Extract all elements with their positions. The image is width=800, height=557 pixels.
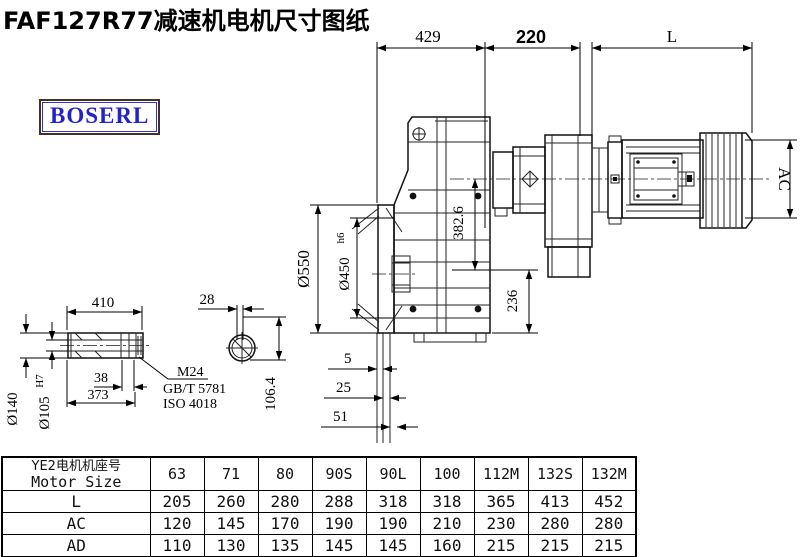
col-header: 63 — [150, 457, 204, 491]
dim-label-AC: AC — [775, 167, 794, 191]
row-label: L — [2, 491, 150, 513]
dim-label-429: 429 — [415, 27, 441, 46]
col-header: 132S — [528, 457, 582, 491]
row-label: AD — [2, 535, 150, 557]
dim-label-5: 5 — [344, 351, 352, 367]
cell: 215 — [582, 535, 636, 557]
cell: 120 — [150, 513, 204, 535]
motor-size-table: YE2电机机座号 Motor Size 63 71 80 90S 90L 100… — [1, 456, 637, 557]
cell: 215 — [474, 535, 528, 557]
motor-view — [608, 133, 752, 228]
cell: 413 — [528, 491, 582, 513]
dim-label-51: 51 — [333, 409, 348, 425]
table-header-en: Motor Size — [3, 474, 150, 490]
dim-label-dia105-tol: H7 — [34, 374, 46, 388]
cell: 205 — [150, 491, 204, 513]
gearbox-view — [352, 117, 490, 443]
table-header-row: YE2电机机座号 Motor Size 63 71 80 90S 90L 100… — [2, 457, 636, 491]
dim-label-106-4: 106.4 — [263, 377, 279, 411]
technical-drawing: 429 220 L AC 382.6 236 Ø550 Ø450 h6 5 25… — [0, 0, 800, 456]
cell: 190 — [366, 513, 420, 535]
dim-label-220: 220 — [516, 27, 546, 47]
cell: 365 — [474, 491, 528, 513]
cell: 110 — [150, 535, 204, 557]
dim-label-dia450-tol: h6 — [335, 232, 347, 244]
cell: 260 — [204, 491, 258, 513]
col-header: 132M — [582, 457, 636, 491]
table-row-AC: AC 120 145 170 190 190 210 230 280 280 — [2, 513, 636, 535]
dim-label-410: 410 — [92, 295, 115, 311]
col-header: 112M — [474, 457, 528, 491]
cell: 145 — [312, 535, 366, 557]
col-header: 90L — [366, 457, 420, 491]
cell: 210 — [420, 513, 474, 535]
cell: 288 — [312, 491, 366, 513]
dim-label-236: 236 — [505, 289, 521, 312]
dim-label-dia105: Ø105 — [37, 396, 53, 429]
dim-label-28: 28 — [200, 292, 215, 308]
cell: 135 — [258, 535, 312, 557]
cell: 318 — [420, 491, 474, 513]
cell: 280 — [582, 513, 636, 535]
dim-label-38: 38 — [94, 371, 108, 386]
cell: 280 — [258, 491, 312, 513]
cell: 215 — [528, 535, 582, 557]
col-header: 100 — [420, 457, 474, 491]
dim-label-GB-T-5781: GB/T 5781 — [163, 382, 226, 397]
table-row-AD: AD 110 130 135 145 145 160 215 215 215 — [2, 535, 636, 557]
drawing-page: FAF127R77减速机电机尺寸图纸 BOSERL — [0, 0, 800, 557]
bore-circle-detail — [226, 332, 258, 364]
cell: 280 — [528, 513, 582, 535]
dim-label-dia550: Ø550 — [294, 250, 313, 288]
dim-label-M24: M24 — [177, 365, 203, 380]
dim-label-dia450: Ø450 — [337, 257, 353, 290]
cell: 160 — [420, 535, 474, 557]
col-header: 80 — [258, 457, 312, 491]
table-header-cell: YE2电机机座号 Motor Size — [2, 457, 150, 491]
table-header-cn: YE2电机机座号 — [3, 459, 150, 474]
col-header: 71 — [204, 457, 258, 491]
dim-label-dia140: Ø140 — [5, 392, 21, 425]
dim-label-L: L — [667, 27, 677, 46]
cell: 230 — [474, 513, 528, 535]
cell: 145 — [366, 535, 420, 557]
cell: 145 — [204, 513, 258, 535]
cell: 130 — [204, 535, 258, 557]
cell: 170 — [258, 513, 312, 535]
table-row-L: L 205 260 280 288 318 318 365 413 452 — [2, 491, 636, 513]
row-label: AC — [2, 513, 150, 535]
cell: 190 — [312, 513, 366, 535]
dimension-lines — [20, 42, 797, 427]
col-header: 90S — [312, 457, 366, 491]
dim-label-382-6: 382.6 — [451, 206, 467, 240]
dim-label-25: 25 — [336, 380, 351, 396]
cell: 452 — [582, 491, 636, 513]
dim-label-ISO-4018: ISO 4018 — [163, 397, 217, 412]
cell: 318 — [366, 491, 420, 513]
adapter-view — [493, 135, 608, 277]
dim-label-373: 373 — [88, 388, 109, 403]
